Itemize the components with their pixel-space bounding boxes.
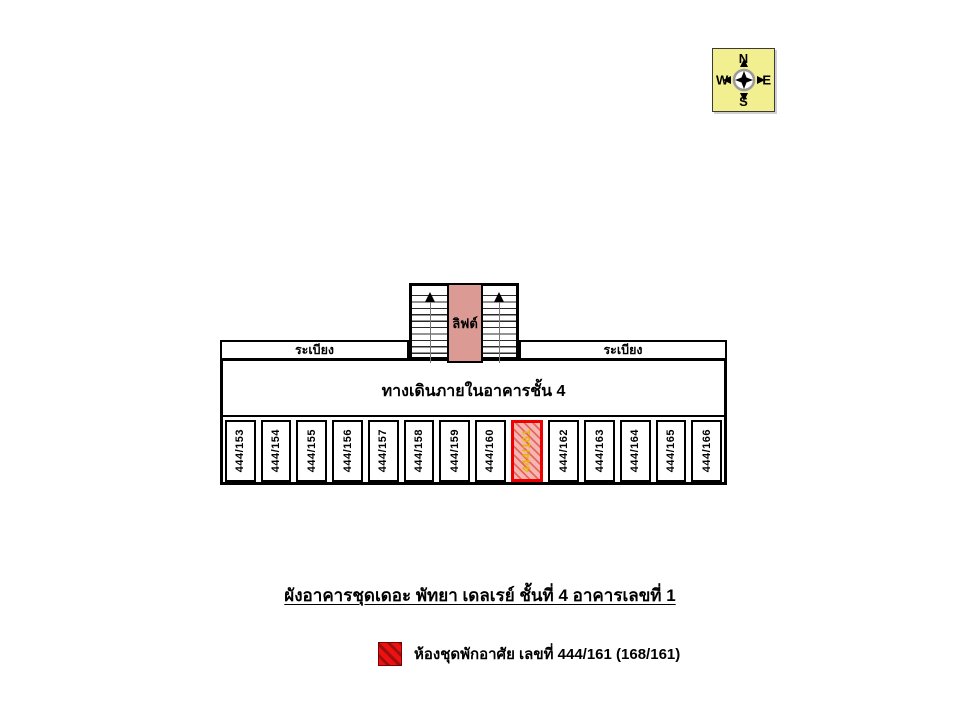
room-cell: 444/165 — [656, 420, 687, 482]
building-main-block: ทางเดินภายในอาคารชั้น 4 444/153444/15444… — [220, 358, 727, 485]
balcony-left-label: ระเบียง — [295, 340, 334, 360]
legend-label: ห้องชุดพักอาศัย เลขที่ 444/161 (168/161) — [414, 642, 680, 666]
legend: ห้องชุดพักอาศัย เลขที่ 444/161 (168/161) — [378, 642, 680, 666]
room-number: 444/155 — [306, 429, 318, 472]
room-number: 444/154 — [270, 429, 282, 472]
room-cell: 444/166 — [691, 420, 722, 482]
stair-midline — [499, 297, 500, 363]
room-number: 444/159 — [449, 429, 461, 472]
room-cell: 444/155 — [296, 420, 327, 482]
room-cell: 444/163 — [584, 420, 615, 482]
room-number: 444/161 — [521, 429, 533, 472]
up-arrow-icon — [425, 292, 435, 302]
room-cell: 444/164 — [620, 420, 651, 482]
balcony-right: ระเบียง — [519, 340, 727, 360]
stair-flight-right — [482, 295, 516, 355]
legend-highlight-swatch — [378, 642, 402, 666]
room-cell: 444/159 — [439, 420, 470, 482]
room-number: 444/164 — [629, 429, 641, 472]
room-cell: 444/153 — [225, 420, 256, 482]
room-number: 444/166 — [701, 429, 713, 472]
elevator-shaft: ลิฟต์ — [447, 283, 483, 363]
stair-midline — [430, 297, 431, 363]
room-number: 444/158 — [413, 429, 425, 472]
rooms-row: 444/153444/154444/155444/156444/157444/1… — [223, 415, 724, 482]
room-cell: 444/156 — [332, 420, 363, 482]
balcony-right-label: ระเบียง — [603, 340, 642, 360]
balcony-left: ระเบียง — [220, 340, 409, 360]
compass-rose: N S W E — [712, 48, 775, 112]
room-number: 444/163 — [594, 429, 606, 472]
room-cell: 444/154 — [261, 420, 292, 482]
corridor-label: ทางเดินภายในอาคารชั้น 4 — [223, 379, 724, 404]
room-number: 444/153 — [234, 429, 246, 472]
room-cell: 444/160 — [475, 420, 506, 482]
room-number: 444/157 — [377, 429, 389, 472]
compass-needle-icon — [722, 58, 766, 102]
up-arrow-icon — [494, 292, 504, 302]
room-number: 444/162 — [558, 429, 570, 472]
stair-flight-left — [412, 295, 448, 355]
plan-title: ผังอาคารชุดเดอะ พัทยา เดลเรย์ ชั้นที่ 4 … — [0, 582, 960, 609]
room-cell: 444/158 — [404, 420, 435, 482]
floor-plan-canvas: N S W E ลิฟต์ ระเบียง ระเบียง — [0, 0, 960, 720]
room-cell: 444/157 — [368, 420, 399, 482]
room-number: 444/160 — [484, 429, 496, 472]
room-cell: 444/162 — [548, 420, 579, 482]
room-number: 444/156 — [342, 429, 354, 472]
room-cell-highlighted: 444/161 — [511, 420, 544, 482]
elevator-label: ลิฟต์ — [452, 313, 478, 334]
room-number: 444/165 — [665, 429, 677, 472]
